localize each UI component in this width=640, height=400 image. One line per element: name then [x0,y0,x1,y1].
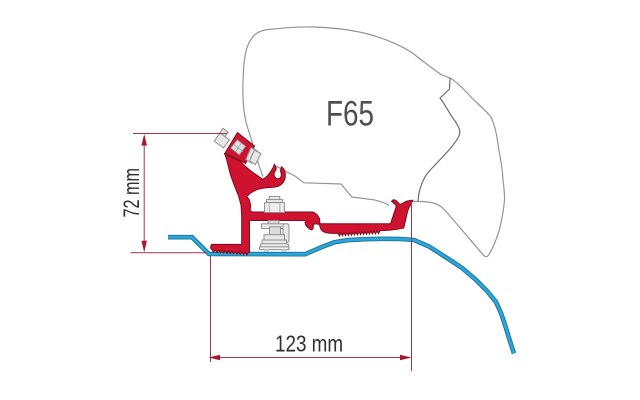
svg-text:123 mm: 123 mm [275,331,343,357]
svg-text:72 mm: 72 mm [119,168,144,218]
svg-text:F65: F65 [326,95,374,134]
